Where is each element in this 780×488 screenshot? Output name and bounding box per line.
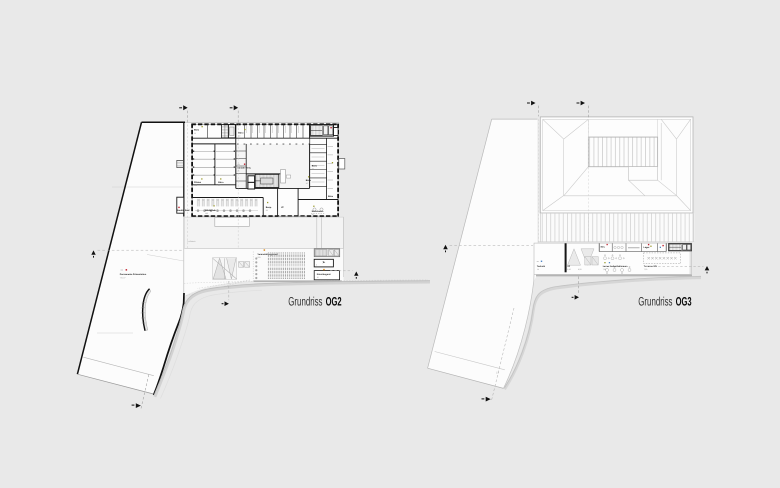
svg-text:Büro: Büro: [238, 131, 244, 134]
svg-text:Grundriss: Grundriss: [288, 294, 322, 308]
svg-text:8,50: 8,50: [578, 268, 582, 271]
svg-text:770 m²: 770 m²: [120, 276, 126, 279]
svg-text:Lager: Lager: [644, 246, 650, 249]
svg-text:San.: San.: [601, 245, 606, 248]
svg-text:Sozialraum: Sozialraum: [312, 210, 324, 213]
svg-text:5: 5: [316, 264, 317, 267]
svg-text:Luftraum: Luftraum: [188, 240, 196, 243]
svg-text:40: 40: [312, 213, 314, 216]
svg-text:Büro: Büro: [312, 164, 318, 167]
svg-text:20: 20: [306, 182, 308, 185]
svg-text:120: 120: [194, 184, 197, 187]
svg-text:OG2: OG2: [326, 294, 342, 308]
svg-text:3,10: 3,10: [567, 268, 571, 271]
svg-text:7,50: 7,50: [644, 268, 648, 271]
svg-text:Technik: Technik: [537, 265, 546, 268]
svg-text:Büro: Büro: [218, 181, 224, 184]
svg-text:97: 97: [218, 184, 220, 187]
svg-text:Lerner Aufenthaltsraum: Lerner Aufenthaltsraum: [603, 265, 628, 268]
svg-text:Bibliothek: Bibliothek: [205, 209, 216, 212]
svg-text:7,06: 7,06: [603, 268, 607, 271]
svg-text:430: 430: [205, 212, 208, 215]
svg-text:Besp.: Besp.: [266, 206, 272, 209]
svg-text:38: 38: [266, 209, 268, 212]
svg-text:10: 10: [317, 276, 319, 279]
svg-text:Sanitär Verw.: Sanitär Verw.: [237, 166, 251, 169]
svg-text:OG3: OG3: [676, 294, 692, 308]
svg-text:14: 14: [537, 268, 539, 271]
svg-text:Büro: Büro: [306, 179, 312, 182]
svg-text:Büro: Büro: [194, 129, 200, 132]
svg-text:40: 40: [238, 134, 240, 137]
svg-text:Büro: Büro: [328, 195, 334, 198]
svg-text:Grundriss: Grundriss: [638, 294, 672, 308]
svg-text:Permanente Präsentation: Permanente Präsentation: [120, 273, 147, 276]
svg-text:20: 20: [312, 167, 314, 170]
svg-text:Künstlergard.: Künstlergard.: [317, 273, 332, 276]
svg-text:Pilates: Pilates: [194, 181, 202, 184]
svg-text:12: 12: [194, 132, 196, 135]
svg-text:550: 550: [258, 256, 261, 259]
svg-text:30: 30: [177, 212, 179, 215]
